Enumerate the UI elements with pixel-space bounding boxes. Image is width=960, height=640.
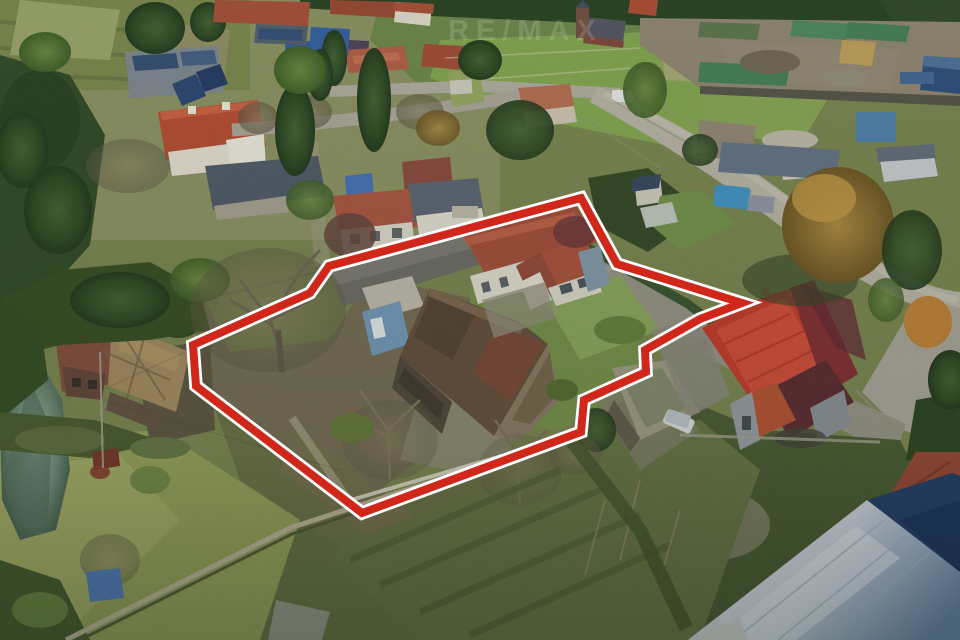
svg-text:RE/MAX: RE/MAX <box>448 15 603 47</box>
